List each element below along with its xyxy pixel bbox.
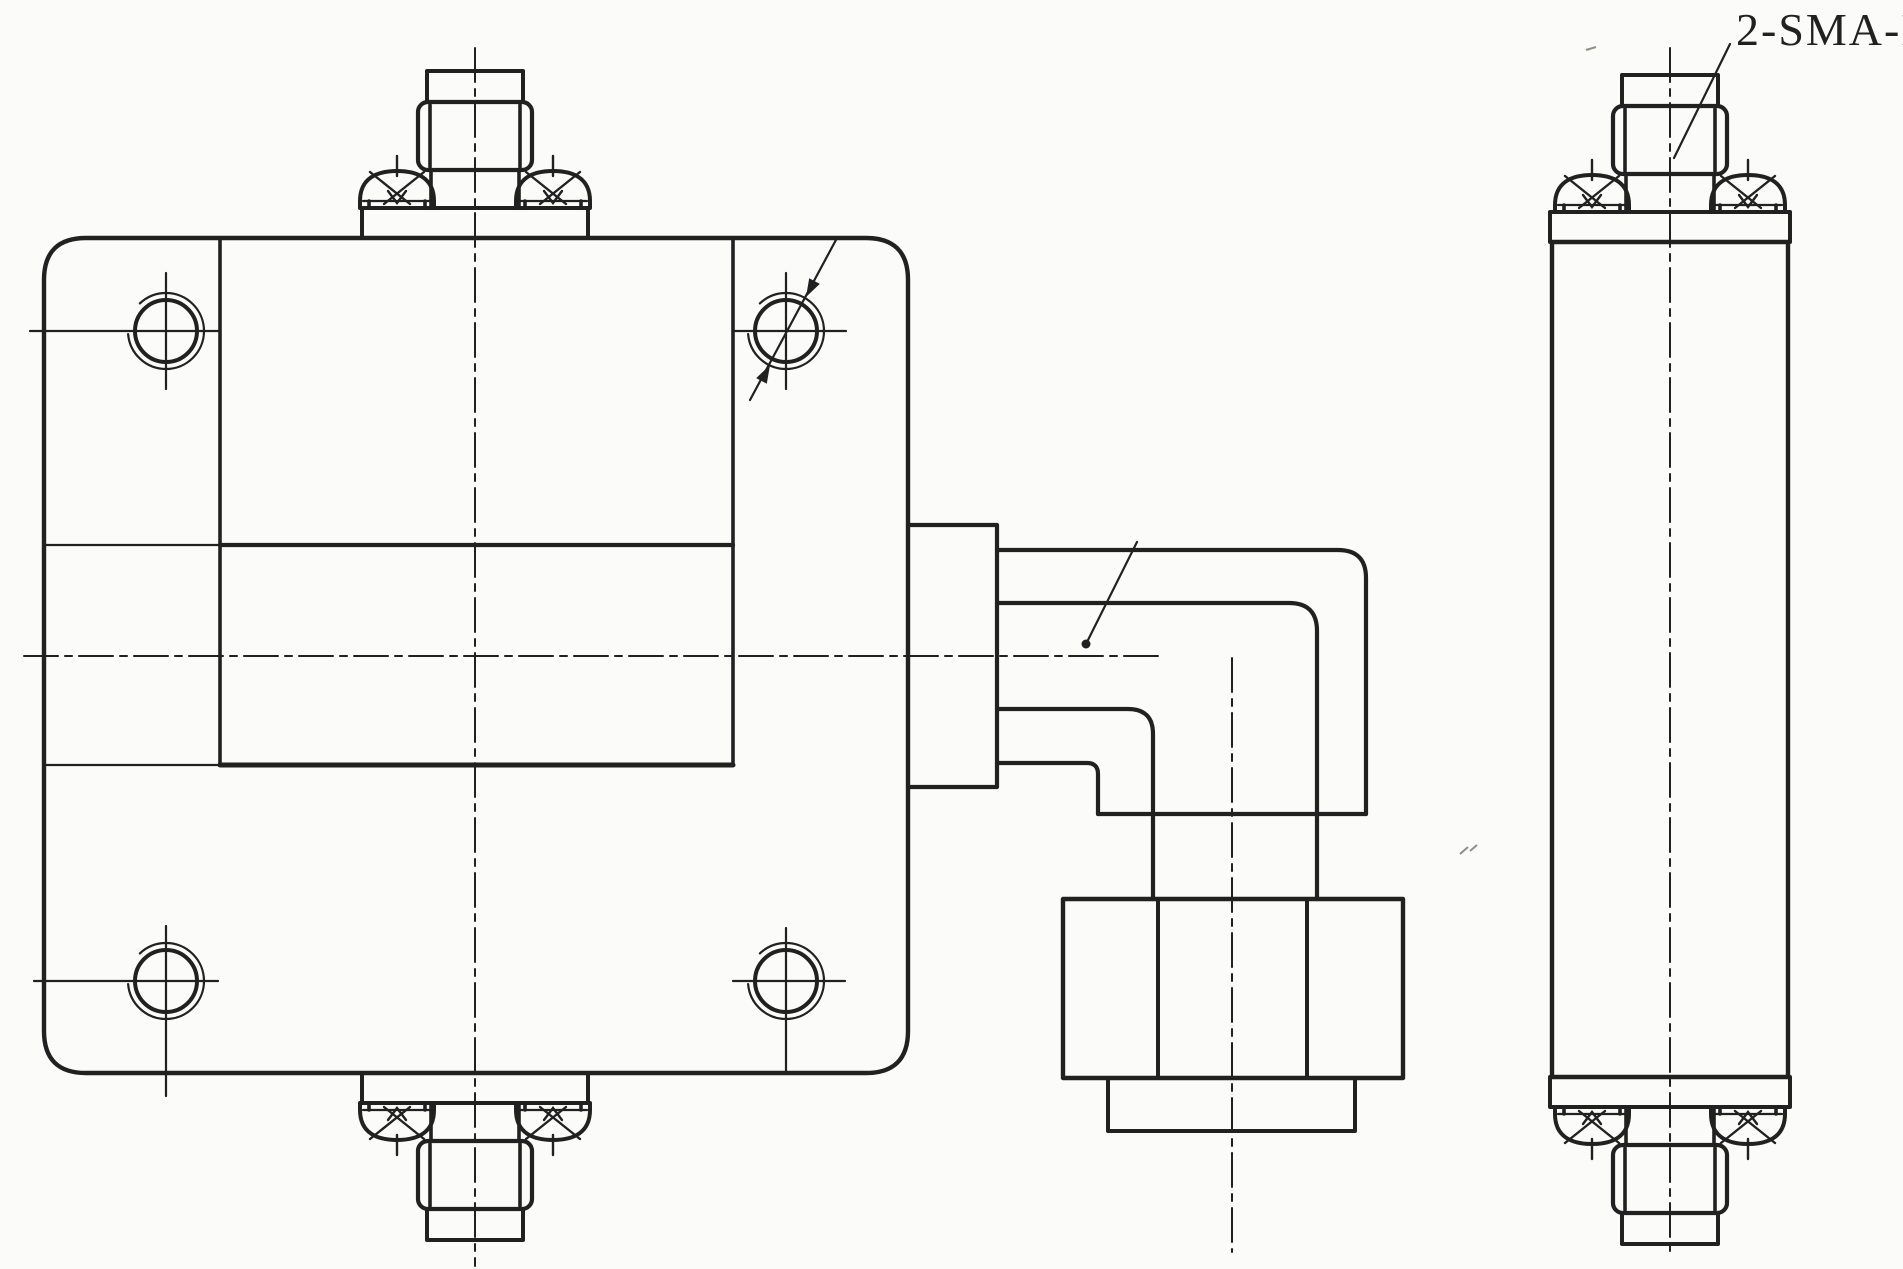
screw-head-icon [1555, 1107, 1629, 1159]
elbow-leader [1082, 542, 1138, 649]
screw-head-icon [360, 156, 434, 208]
connector-callout: 2-SMA-K [1674, 4, 1903, 158]
side-port-elbow [908, 525, 1403, 1252]
connector-callout-label: 2-SMA-K [1736, 4, 1903, 55]
front-view [24, 48, 1403, 1266]
mounting-hole-bottom-left [34, 926, 218, 1096]
screw-head-icon [360, 1103, 434, 1155]
technical-drawing: 2-SMA-K [0, 0, 1903, 1269]
screw-head-icon [516, 1103, 590, 1155]
internal-pocket [45, 239, 733, 765]
mounting-hole-top-right [733, 273, 846, 389]
screw-head-icon [1711, 1107, 1785, 1159]
screw-head-icon [516, 156, 590, 208]
callout-leader-line [1674, 44, 1730, 158]
hole-diameter-dimension [750, 238, 837, 400]
scan-specks [1460, 47, 1596, 854]
screw-head-icon [1555, 160, 1629, 212]
mounting-hole-top-left [30, 273, 218, 389]
engineering-drawing-sheet: 2-SMA-K [0, 0, 1903, 1269]
screw-head-icon [1711, 160, 1785, 212]
mounting-hole-bottom-right [733, 928, 845, 1072]
side-view [1550, 48, 1790, 1256]
